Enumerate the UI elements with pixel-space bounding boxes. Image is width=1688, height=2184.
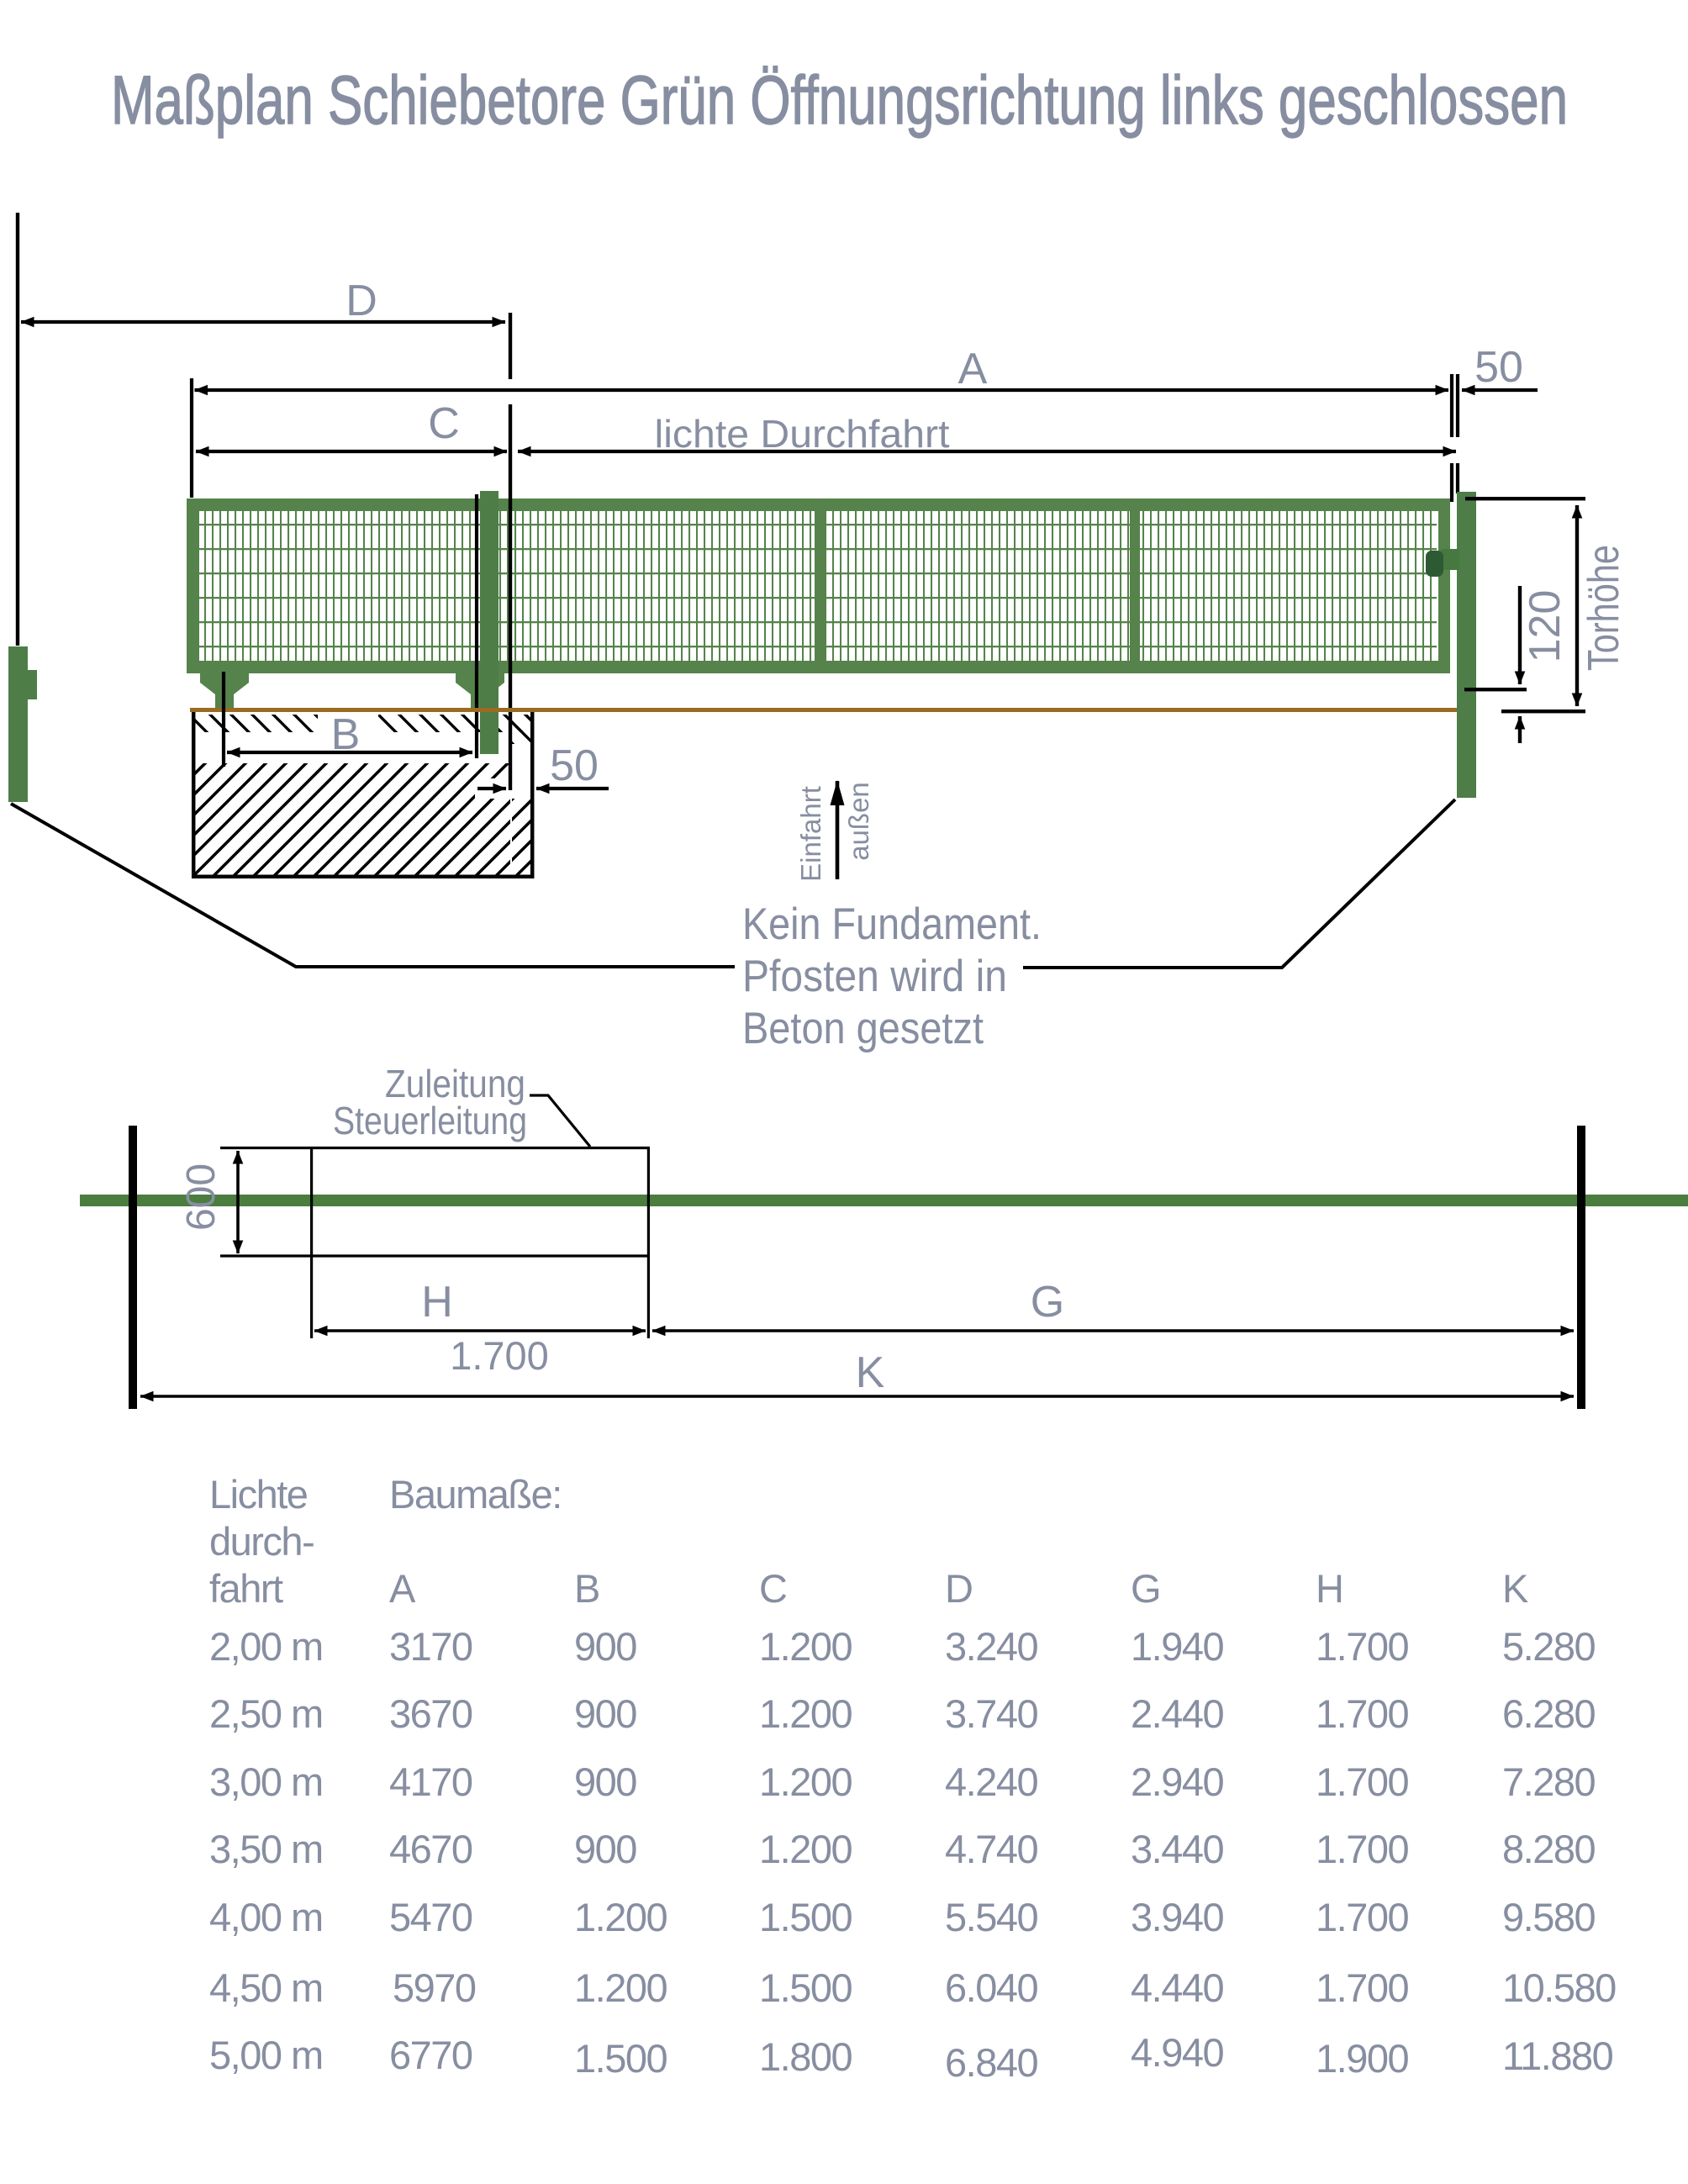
svg-text:Einfahrt: Einfahrt xyxy=(795,786,826,882)
svg-text:H: H xyxy=(1316,1566,1344,1611)
svg-text:1.700: 1.700 xyxy=(1316,1827,1408,1871)
svg-text:2,50 m: 2,50 m xyxy=(209,1691,323,1736)
svg-text:1.500: 1.500 xyxy=(759,1965,852,2010)
svg-text:3,00 m: 3,00 m xyxy=(209,1759,323,1804)
svg-text:H: H xyxy=(421,1278,453,1327)
svg-text:Lichte: Lichte xyxy=(209,1472,308,1517)
svg-text:4.740: 4.740 xyxy=(945,1827,1037,1871)
svg-text:G: G xyxy=(1031,1278,1064,1327)
svg-text:C: C xyxy=(759,1566,788,1611)
svg-text:50: 50 xyxy=(1474,343,1523,392)
svg-text:5970: 5970 xyxy=(393,1965,476,2010)
svg-text:A: A xyxy=(958,345,988,393)
svg-text:3.740: 3.740 xyxy=(945,1691,1037,1736)
svg-text:K: K xyxy=(1502,1566,1528,1611)
svg-text:4170: 4170 xyxy=(389,1759,472,1804)
svg-text:B: B xyxy=(331,710,361,759)
svg-text:8.280: 8.280 xyxy=(1502,1827,1595,1871)
svg-text:2.940: 2.940 xyxy=(1131,1759,1223,1804)
svg-text:1.700: 1.700 xyxy=(1316,1691,1408,1736)
svg-text:11.880: 11.880 xyxy=(1502,2034,1613,2078)
svg-text:9.580: 9.580 xyxy=(1502,1895,1595,1939)
svg-text:6.040: 6.040 xyxy=(945,1965,1037,2010)
svg-text:1.800: 1.800 xyxy=(759,2034,852,2079)
svg-text:1.200: 1.200 xyxy=(759,1624,852,1669)
svg-text:1.700: 1.700 xyxy=(1316,1965,1408,2010)
svg-text:1.500: 1.500 xyxy=(759,1895,852,1939)
svg-text:120: 120 xyxy=(1521,590,1569,663)
svg-text:5.540: 5.540 xyxy=(945,1895,1037,1939)
svg-text:900: 900 xyxy=(574,1759,636,1804)
svg-text:6770: 6770 xyxy=(389,2033,472,2077)
svg-text:4670: 4670 xyxy=(389,1827,472,1871)
svg-text:900: 900 xyxy=(574,1691,636,1736)
svg-text:1.700: 1.700 xyxy=(1316,1759,1408,1804)
svg-text:6.840: 6.840 xyxy=(945,2040,1037,2085)
svg-text:1.700: 1.700 xyxy=(1316,1895,1408,1939)
svg-text:1.200: 1.200 xyxy=(574,1895,667,1939)
svg-text:durch-: durch- xyxy=(209,1519,314,1564)
svg-text:3.940: 3.940 xyxy=(1131,1895,1223,1939)
svg-text:A: A xyxy=(389,1566,416,1611)
svg-text:5.280: 5.280 xyxy=(1502,1624,1595,1669)
svg-text:K: K xyxy=(856,1348,885,1397)
svg-text:900: 900 xyxy=(574,1827,636,1871)
svg-text:Pfosten wird in: Pfosten wird in xyxy=(742,952,1007,1001)
svg-text:1.700: 1.700 xyxy=(1316,1624,1408,1669)
svg-text:1.200: 1.200 xyxy=(574,1965,667,2010)
svg-text:10.580: 10.580 xyxy=(1502,1965,1616,2010)
svg-text:4.440: 4.440 xyxy=(1131,1965,1223,2010)
svg-text:fahrt: fahrt xyxy=(209,1566,283,1611)
svg-text:1.200: 1.200 xyxy=(759,1827,852,1871)
svg-text:4,00 m: 4,00 m xyxy=(209,1895,323,1939)
svg-text:900: 900 xyxy=(574,1624,636,1669)
svg-text:600: 600 xyxy=(179,1163,224,1231)
svg-text:50: 50 xyxy=(550,741,599,790)
svg-text:3.240: 3.240 xyxy=(945,1624,1037,1669)
svg-text:G: G xyxy=(1131,1566,1162,1611)
svg-text:Torhöhe: Torhöhe xyxy=(1580,545,1628,671)
svg-text:1.940: 1.940 xyxy=(1131,1624,1223,1669)
svg-text:4.940: 4.940 xyxy=(1131,2030,1223,2075)
svg-text:D: D xyxy=(945,1566,973,1611)
svg-text:1.200: 1.200 xyxy=(759,1691,852,1736)
svg-text:5470: 5470 xyxy=(389,1895,472,1939)
svg-text:außen: außen xyxy=(843,782,874,861)
svg-text:3,50 m: 3,50 m xyxy=(209,1827,323,1871)
svg-text:3.440: 3.440 xyxy=(1131,1827,1223,1871)
svg-text:Beton gesetzt: Beton gesetzt xyxy=(742,1004,984,1053)
svg-text:D: D xyxy=(346,277,377,325)
svg-text:Baumaße:: Baumaße: xyxy=(389,1472,562,1517)
svg-text:B: B xyxy=(574,1566,600,1611)
svg-text:7.280: 7.280 xyxy=(1502,1759,1595,1804)
svg-text:1.900: 1.900 xyxy=(1316,2036,1408,2081)
svg-text:6.280: 6.280 xyxy=(1502,1691,1595,1736)
svg-text:C: C xyxy=(428,399,460,448)
svg-text:lichte Durchfahrt: lichte Durchfahrt xyxy=(655,412,950,456)
svg-text:Kein Fundament.: Kein Fundament. xyxy=(742,899,1042,949)
svg-text:1.200: 1.200 xyxy=(759,1759,852,1804)
svg-text:3670: 3670 xyxy=(389,1691,472,1736)
svg-text:2,00 m: 2,00 m xyxy=(209,1624,323,1669)
svg-text:Steuerleitung: Steuerleitung xyxy=(333,1099,527,1142)
svg-text:4.240: 4.240 xyxy=(945,1759,1037,1804)
svg-text:1.700: 1.700 xyxy=(450,1333,549,1378)
svg-text:2.440: 2.440 xyxy=(1131,1691,1223,1736)
svg-text:1.500: 1.500 xyxy=(574,2036,667,2081)
svg-text:3170: 3170 xyxy=(389,1624,472,1669)
svg-text:4,50 m: 4,50 m xyxy=(209,1965,323,2010)
svg-text:Maßplan Schiebetore Grün Öffnu: Maßplan Schiebetore Grün Öffnungsrichtun… xyxy=(111,62,1568,139)
svg-text:5,00 m: 5,00 m xyxy=(209,2033,323,2077)
